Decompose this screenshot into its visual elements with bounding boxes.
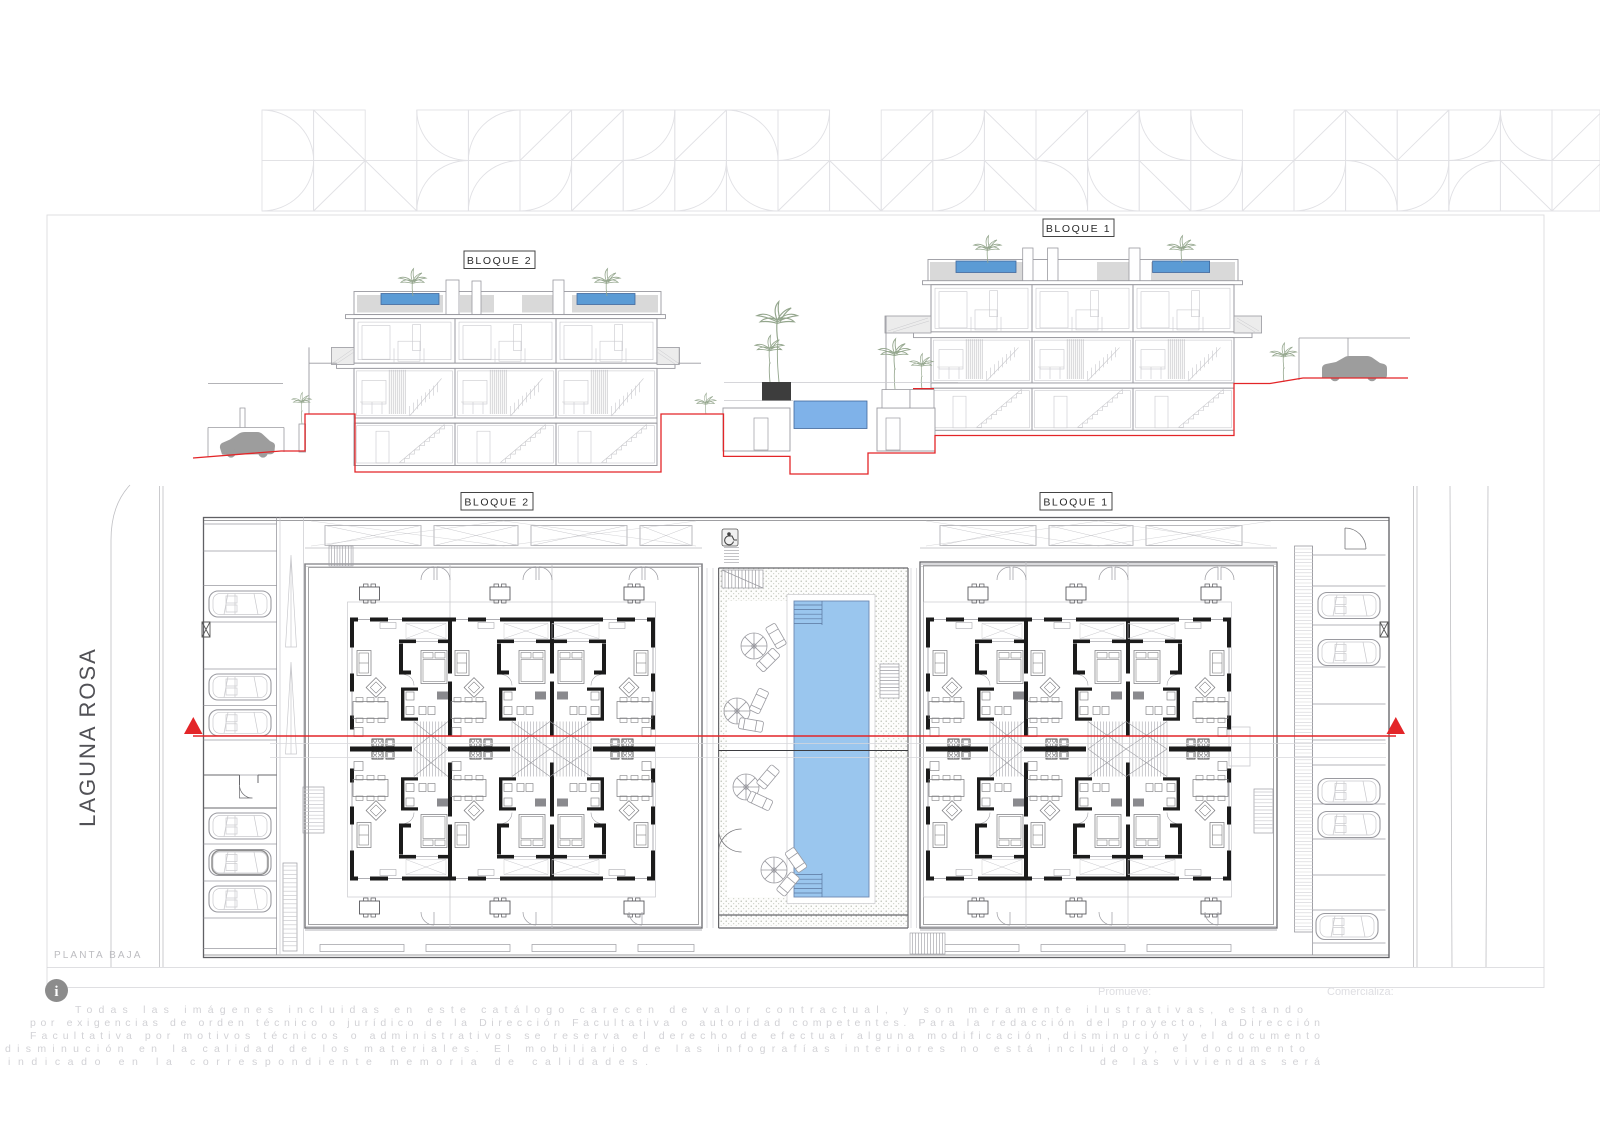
svg-text:Facultativa por motivos técnic: Facultativa por motivos técnicos o admin…: [30, 1030, 1320, 1042]
svg-text:BLOQUE 2: BLOQUE 2: [467, 255, 532, 267]
svg-text:BLOQUE 1: BLOQUE 1: [1043, 497, 1108, 509]
svg-text:i: i: [54, 984, 58, 1000]
svg-text:BLOQUE 1: BLOQUE 1: [1046, 223, 1111, 235]
svg-text:LAGUNA ROSA: LAGUNA ROSA: [75, 647, 100, 827]
svg-text:BLOQUE 2: BLOQUE 2: [464, 497, 529, 509]
svg-text:Promueve:: Promueve:: [1098, 986, 1151, 998]
svg-text:PLANTA BAJA: PLANTA BAJA: [54, 950, 143, 961]
svg-text:Comercializa:: Comercializa:: [1327, 986, 1394, 998]
